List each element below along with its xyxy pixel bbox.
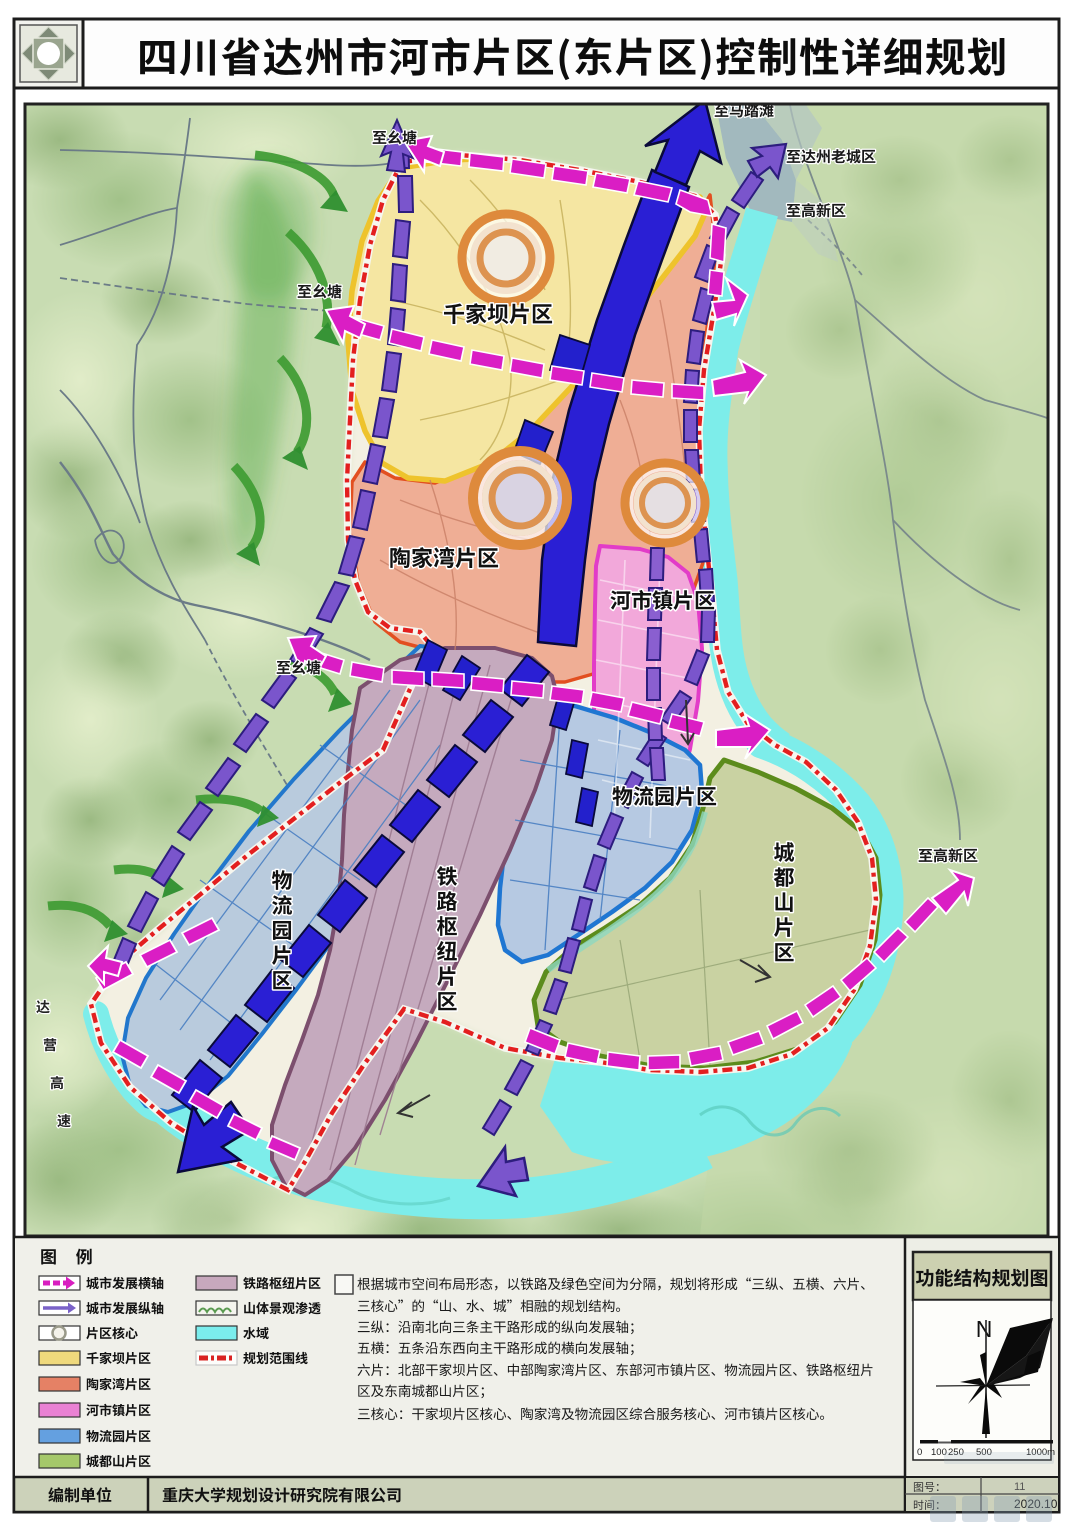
svg-text:N: N	[976, 1316, 993, 1342]
svg-text:0: 0	[917, 1447, 922, 1458]
svg-text:11: 11	[1014, 1481, 1025, 1493]
